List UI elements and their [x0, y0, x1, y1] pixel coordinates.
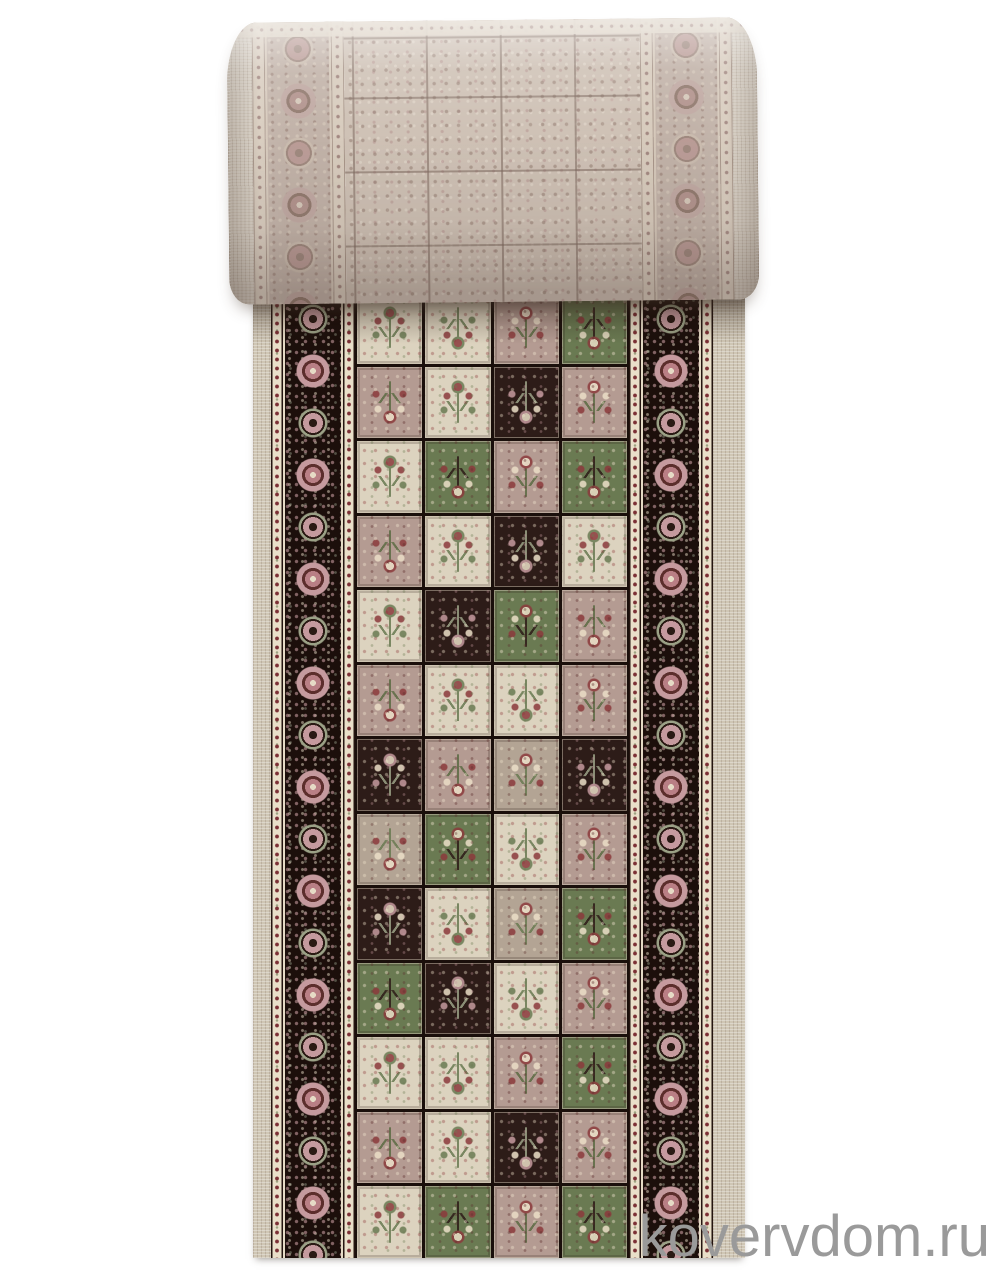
- carpet-tile: [357, 814, 422, 886]
- carpet-tile: [562, 441, 627, 513]
- carpet-tile: [425, 665, 490, 737]
- carpet-tile: [494, 739, 559, 811]
- roll-ornate-border-right: [653, 18, 722, 301]
- carpet-tile: [425, 367, 490, 439]
- carpet-tile: [357, 516, 422, 588]
- roll-tile-field: [344, 18, 643, 303]
- carpet-tile: [494, 814, 559, 886]
- carpet-tile: [562, 292, 627, 364]
- carpet-tile: [562, 739, 627, 811]
- carpet-tile: [494, 1037, 559, 1109]
- carpet-tile: [425, 814, 490, 886]
- tile-field: [355, 292, 629, 1258]
- carpet-tile: [562, 814, 627, 886]
- carpet-tile: [562, 367, 627, 439]
- carpet-tile: [357, 1112, 422, 1184]
- carpet-tile: [494, 441, 559, 513]
- carpet-tile: [562, 590, 627, 662]
- carpet-runner-strip: [253, 292, 745, 1258]
- carpet-tile: [425, 1186, 490, 1258]
- carpet-tile: [425, 590, 490, 662]
- carpet-tile: [425, 441, 490, 513]
- rolled-carpet: [227, 17, 760, 305]
- carpet-tile: [357, 590, 422, 662]
- carpet-tile: [494, 888, 559, 960]
- ornate-border-right: [641, 292, 701, 1258]
- carpet-tile: [494, 1112, 559, 1184]
- carpet-tile: [357, 367, 422, 439]
- carpet-tile: [425, 963, 490, 1035]
- carpet-tile: [357, 665, 422, 737]
- carpet-tile: [494, 1186, 559, 1258]
- guard-stripe-inner-left: [343, 292, 355, 1258]
- carpet-tile: [425, 1112, 490, 1184]
- carpet-tile: [494, 590, 559, 662]
- watermark-text: kovervdom.ru: [639, 1208, 986, 1266]
- guard-stripe-outer-left: [271, 292, 283, 1258]
- carpet-tile: [425, 1037, 490, 1109]
- carpet-tile: [562, 963, 627, 1035]
- carpet-back-side: [227, 17, 760, 305]
- carpet-tile: [494, 367, 559, 439]
- carpet-tile: [425, 739, 490, 811]
- carpet-tile: [562, 1037, 627, 1109]
- carpet-tile: [357, 1186, 422, 1258]
- carpet-tile: [357, 1037, 422, 1109]
- carpet-tile: [357, 441, 422, 513]
- carpet-tile: [562, 665, 627, 737]
- carpet-tile: [425, 888, 490, 960]
- carpet-tile: [494, 963, 559, 1035]
- carpet-tile: [357, 963, 422, 1035]
- carpet-tile: [494, 665, 559, 737]
- carpet-tile: [562, 1112, 627, 1184]
- carpet-tile: [357, 739, 422, 811]
- product-photo: kovervdom.ru: [0, 0, 986, 1280]
- carpet-tile: [562, 516, 627, 588]
- carpet-tile: [562, 888, 627, 960]
- roll-selvedge-left: [227, 23, 255, 305]
- carpet-tile: [562, 1186, 627, 1258]
- selvedge-right: [713, 292, 745, 1258]
- guard-stripe-inner-right: [629, 292, 641, 1258]
- selvedge-left: [253, 292, 271, 1258]
- carpet-tile: [494, 516, 559, 588]
- carpet-tile: [425, 292, 490, 364]
- roll-selvedge-right: [732, 17, 760, 299]
- carpet-tile: [425, 516, 490, 588]
- carpet-tile: [357, 888, 422, 960]
- roll-ornate-border-left: [265, 22, 334, 305]
- ornate-border-left: [283, 292, 343, 1258]
- carpet-tile: [494, 292, 559, 364]
- guard-stripe-outer-right: [701, 292, 713, 1258]
